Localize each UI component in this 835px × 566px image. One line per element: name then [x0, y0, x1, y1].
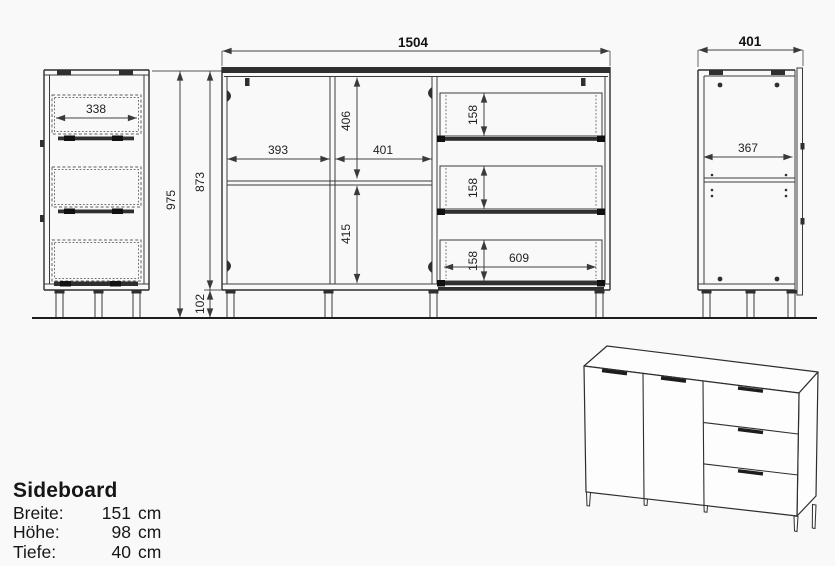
- front-face: [584, 366, 799, 516]
- wall-clip: [40, 140, 45, 147]
- dim-drawer3-height: 158: [466, 241, 484, 281]
- dim-label-102: 102: [193, 294, 207, 314]
- dim-label-367: 367: [738, 141, 758, 155]
- dim-label-338: 338: [86, 102, 106, 116]
- hinge-plate: [57, 70, 71, 75]
- legs: [226, 290, 605, 318]
- dim-total-height: 975: [152, 71, 222, 318]
- legs: [55, 290, 142, 318]
- hinge: [227, 90, 231, 102]
- drawing-page: 338 975: [0, 0, 835, 566]
- spec-label: Tiefe:: [13, 543, 95, 562]
- perspective-view: [584, 346, 818, 532]
- hardware-fitting: [245, 78, 250, 86]
- dim-label-873: 873: [193, 172, 207, 192]
- dim-total-width: 1504: [222, 35, 610, 66]
- cabinet-carcass: [698, 68, 805, 295]
- dim-label-609: 609: [509, 251, 529, 265]
- side-view-right: 401 367: [698, 34, 805, 318]
- screw-dot: [718, 83, 723, 88]
- hinge: [428, 261, 432, 273]
- dim-drawer-depth: 338: [56, 102, 137, 118]
- dim-leg-height: 102: [193, 291, 210, 318]
- hinge-plate: [119, 70, 133, 75]
- dim-label-415: 415: [339, 224, 353, 244]
- dim-body-height: 873: [193, 72, 222, 291]
- hardware-fitting: [581, 78, 586, 86]
- screw-dot: [718, 277, 723, 282]
- hinge: [227, 260, 231, 272]
- side-view-left: 338 975: [40, 70, 222, 318]
- top-board: [222, 67, 610, 73]
- dim-label-401-door: 401: [373, 143, 393, 157]
- hinge: [428, 87, 432, 99]
- spec-value: 40: [95, 543, 131, 562]
- dim-label-393: 393: [268, 143, 288, 157]
- spec-row-depth: Tiefe: 40 cm: [13, 543, 161, 562]
- screw-dot: [775, 83, 780, 88]
- dim-label-1504: 1504: [398, 35, 429, 50]
- title-block: Sideboard Breite: 151 cm Höhe: 98 cm Tie…: [13, 479, 161, 562]
- spec-unit: cm: [138, 523, 161, 542]
- dim-interior-depth: 367: [704, 141, 793, 157]
- dim-label-158-2: 158: [466, 178, 480, 198]
- cabinet-carcass: [222, 67, 610, 290]
- dim-drawer2-height: 158: [466, 167, 484, 209]
- hinge-plate: [771, 70, 785, 75]
- edge-fitting: [801, 143, 805, 150]
- dim-label-158-1: 158: [466, 105, 480, 125]
- dim-lower-height: 415: [339, 186, 357, 283]
- drawer-boxes-dashed: [52, 95, 141, 287]
- hinge-plate: [709, 70, 723, 75]
- front-view: 1504 393 401 406 415 158 158 158: [193, 35, 610, 318]
- dim-drawer1-height: 158: [466, 94, 484, 136]
- screw-dot: [775, 277, 780, 282]
- spec-row-height: Höhe: 98 cm: [13, 523, 161, 542]
- edge-fitting: [801, 218, 805, 225]
- spec-unit: cm: [138, 543, 161, 562]
- dim-upper-height: 406: [339, 78, 357, 179]
- product-title: Sideboard: [13, 479, 161, 503]
- door-front-edge: [797, 68, 803, 295]
- dim-depth: 401: [698, 34, 803, 67]
- spec-row-width: Breite: 151 cm: [13, 504, 161, 523]
- spec-value: 98: [95, 523, 131, 542]
- side-face: [797, 372, 818, 516]
- dim-label-975: 975: [164, 190, 178, 210]
- dim-label-406: 406: [339, 111, 353, 131]
- dim-door-left: 393: [228, 143, 330, 159]
- spec-label: Höhe:: [13, 523, 95, 542]
- dim-door-right: 401: [336, 143, 432, 159]
- dim-label-401-depth: 401: [739, 34, 762, 49]
- legs: [702, 290, 797, 318]
- wall-clip: [40, 215, 45, 222]
- spec-unit: cm: [138, 504, 161, 523]
- spec-value: 151: [95, 504, 131, 523]
- dim-label-158-3: 158: [466, 251, 480, 271]
- spec-label: Breite:: [13, 504, 95, 523]
